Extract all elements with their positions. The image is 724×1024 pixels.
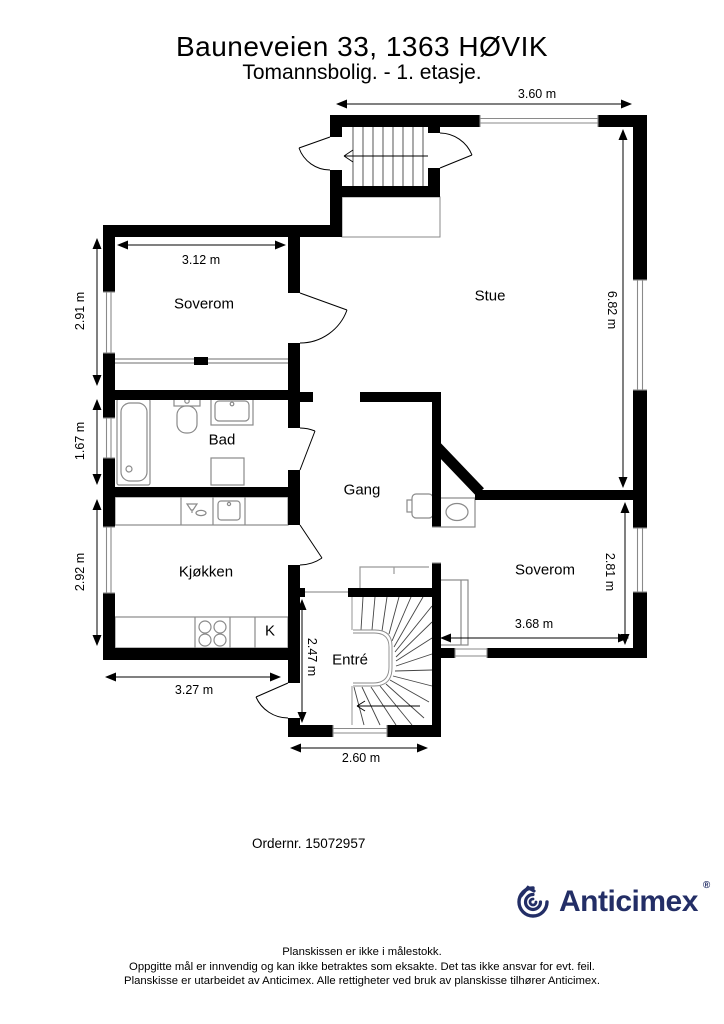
- anticimex-logo: Anticimex®: [512, 880, 710, 924]
- dim-stue-height: 6.82 m: [605, 291, 619, 329]
- room-label-bad: Bad: [209, 432, 236, 449]
- order-number: Ordernr. 15072957: [252, 836, 365, 851]
- dim-kjokken-width: 3.27 m: [175, 683, 213, 697]
- hall-washbasin: [407, 494, 433, 518]
- dim-entre-width: 2.60 m: [342, 751, 380, 765]
- room-label-soverom2: Soverom: [515, 562, 575, 579]
- diagonal-wall: [436, 446, 480, 492]
- anticimex-wordmark: Anticimex: [559, 880, 698, 924]
- disclaimer-line-3: Planskisse er utarbeidet av Anticimex. A…: [0, 974, 724, 989]
- room-label-gang: Gang: [344, 482, 381, 499]
- disclaimer: Planskissen er ikke i målestokk. Oppgitt…: [0, 945, 724, 989]
- floor-plan-page: Bauneveien 33, 1363 HØVIK Tomannsbolig. …: [0, 0, 724, 1024]
- bedroom2-wardrobe: [438, 580, 468, 645]
- wc-toilet: [440, 498, 475, 527]
- dim-soverom2-width: 3.68 m: [515, 617, 553, 631]
- registered-mark: ®: [703, 880, 710, 891]
- dim-entre-height: 2.47 m: [305, 638, 319, 676]
- dim-soverom1-width: 3.12 m: [182, 253, 220, 267]
- dim-soverom2-height: 2.81 m: [603, 553, 617, 591]
- room-label-soverom1: Soverom: [174, 296, 234, 313]
- straight-stairs: [344, 127, 428, 186]
- disclaimer-line-2: Oppgitte mål er innvendig og kan ikke be…: [0, 960, 724, 975]
- room-label-stue: Stue: [475, 288, 506, 305]
- bedroom1-closet: [115, 357, 288, 365]
- room-label-entre: Entré: [332, 652, 368, 669]
- dim-bad-height: 1.67 m: [73, 422, 87, 460]
- anticimex-spiral-icon: [512, 880, 554, 924]
- stair-landing: [342, 197, 440, 237]
- dim-kjokken-height: 2.92 m: [73, 553, 87, 591]
- dim-top-width: 3.60 m: [518, 87, 556, 101]
- disclaimer-line-1: Planskissen er ikke i målestokk.: [0, 945, 724, 960]
- floor-plan-drawing: [0, 0, 724, 1024]
- dim-soverom1-height: 2.91 m: [73, 292, 87, 330]
- fridge-label: K: [265, 623, 275, 640]
- room-label-kjokken: Kjøkken: [179, 564, 233, 581]
